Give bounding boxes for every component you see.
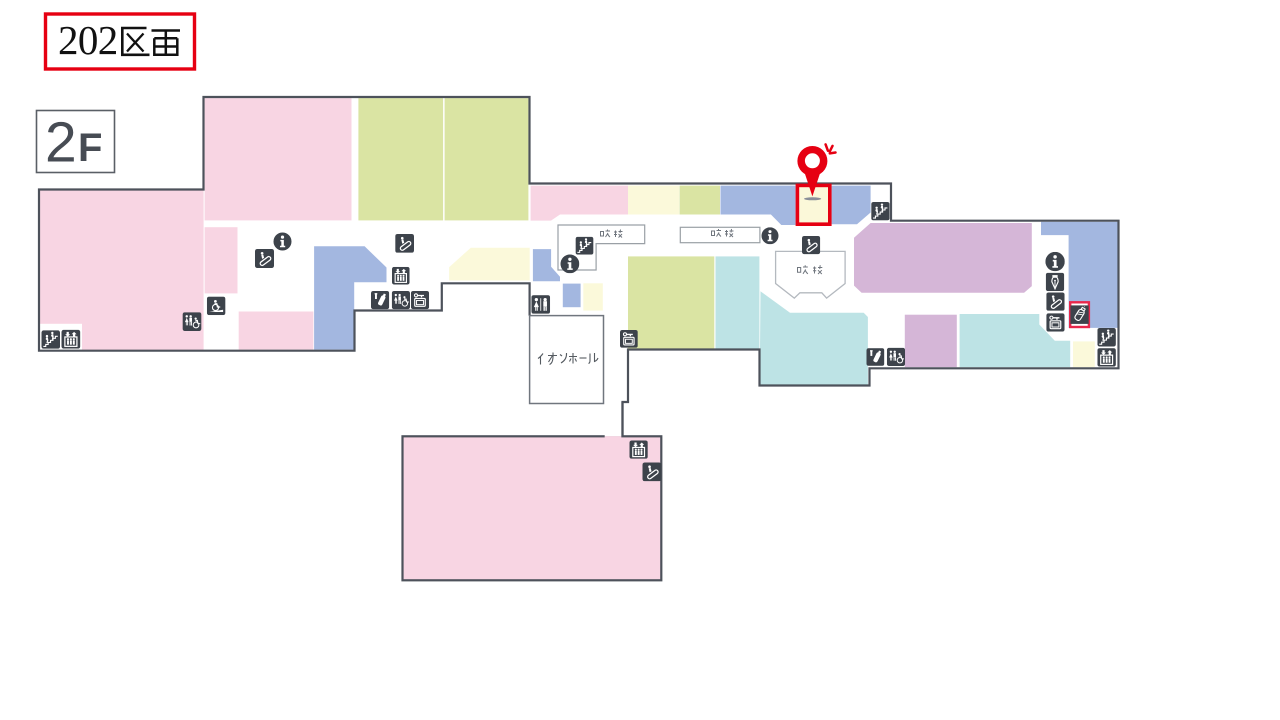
svg-text:F: F: [78, 126, 102, 170]
svg-text:2: 2: [45, 111, 77, 175]
svg-text:202: 202: [58, 17, 118, 63]
